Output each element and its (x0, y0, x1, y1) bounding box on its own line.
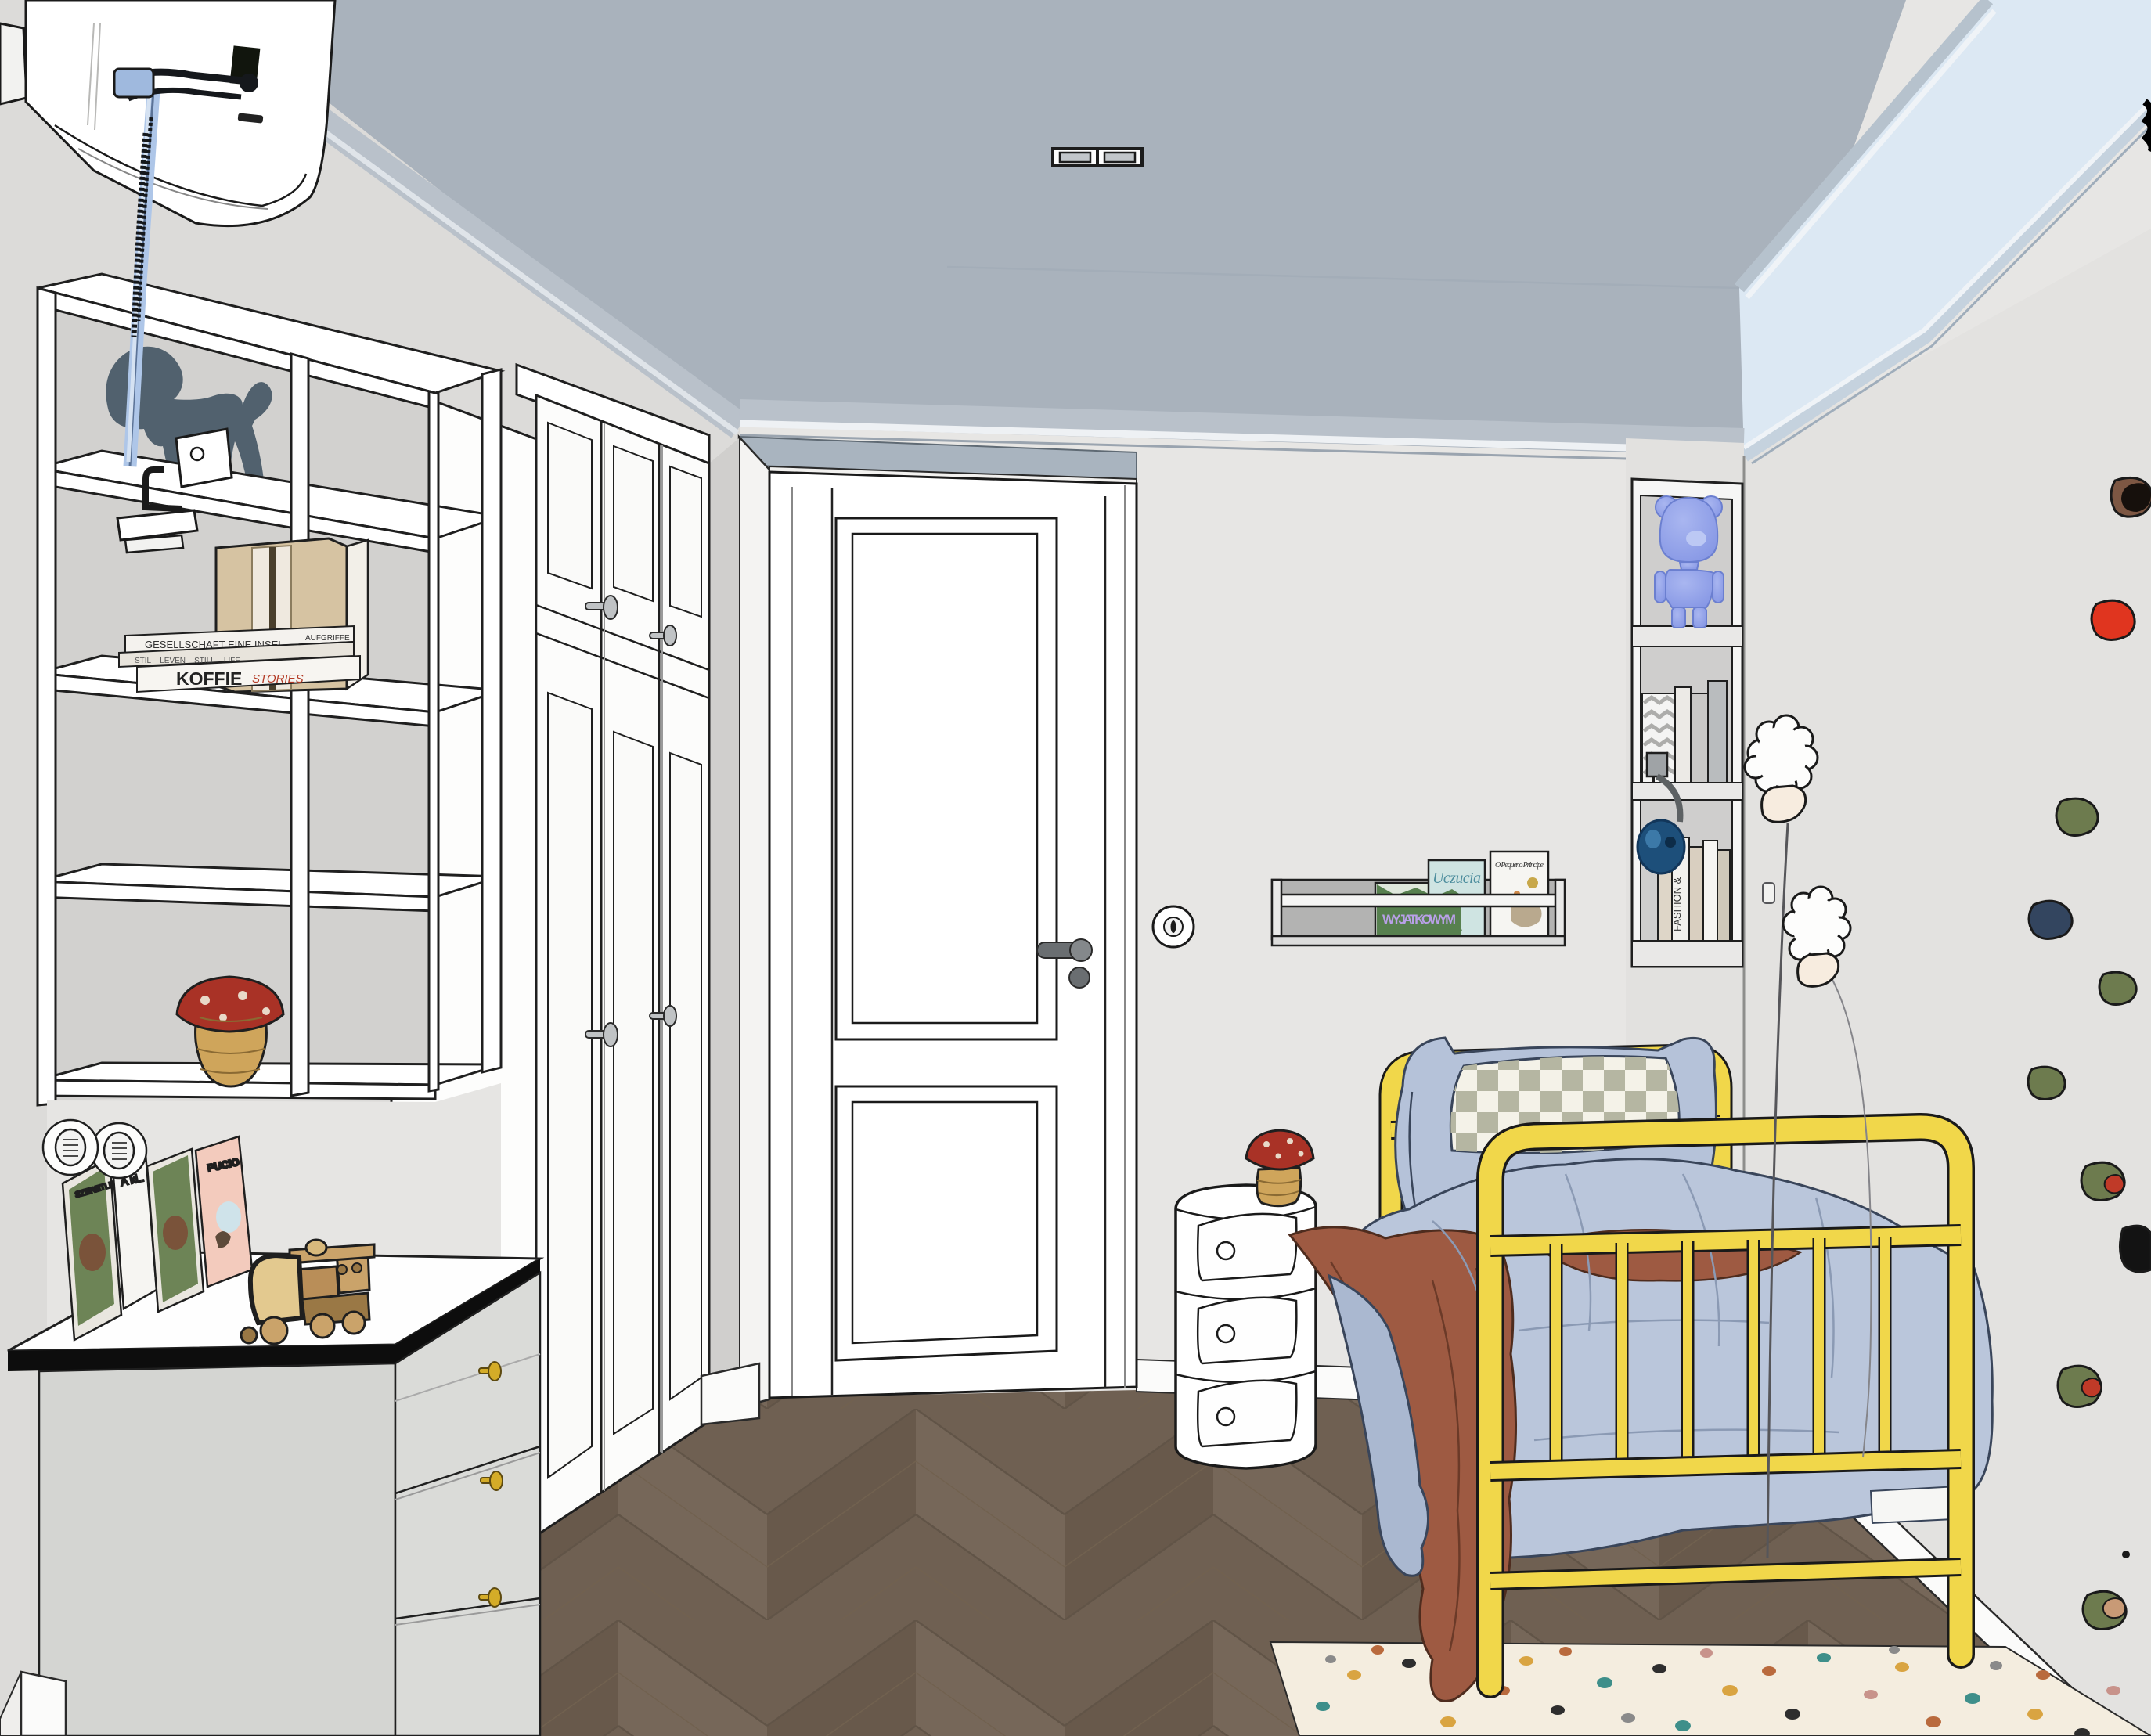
svg-text:KOFFIE: KOFFIE (176, 668, 242, 689)
svg-text:WYJATKOWYM: WYJATKOWYM (1382, 913, 1456, 927)
svg-text:STORIES: STORIES (252, 672, 304, 686)
svg-text:AUFGRIFFE: AUFGRIFFE (305, 634, 350, 643)
svg-text:Uczucia: Uczucia (1432, 870, 1481, 887)
svg-text:FASHION &: FASHION & (1671, 877, 1683, 931)
svg-text:O Pequeno Principe: O Pequeno Principe (1495, 861, 1544, 870)
